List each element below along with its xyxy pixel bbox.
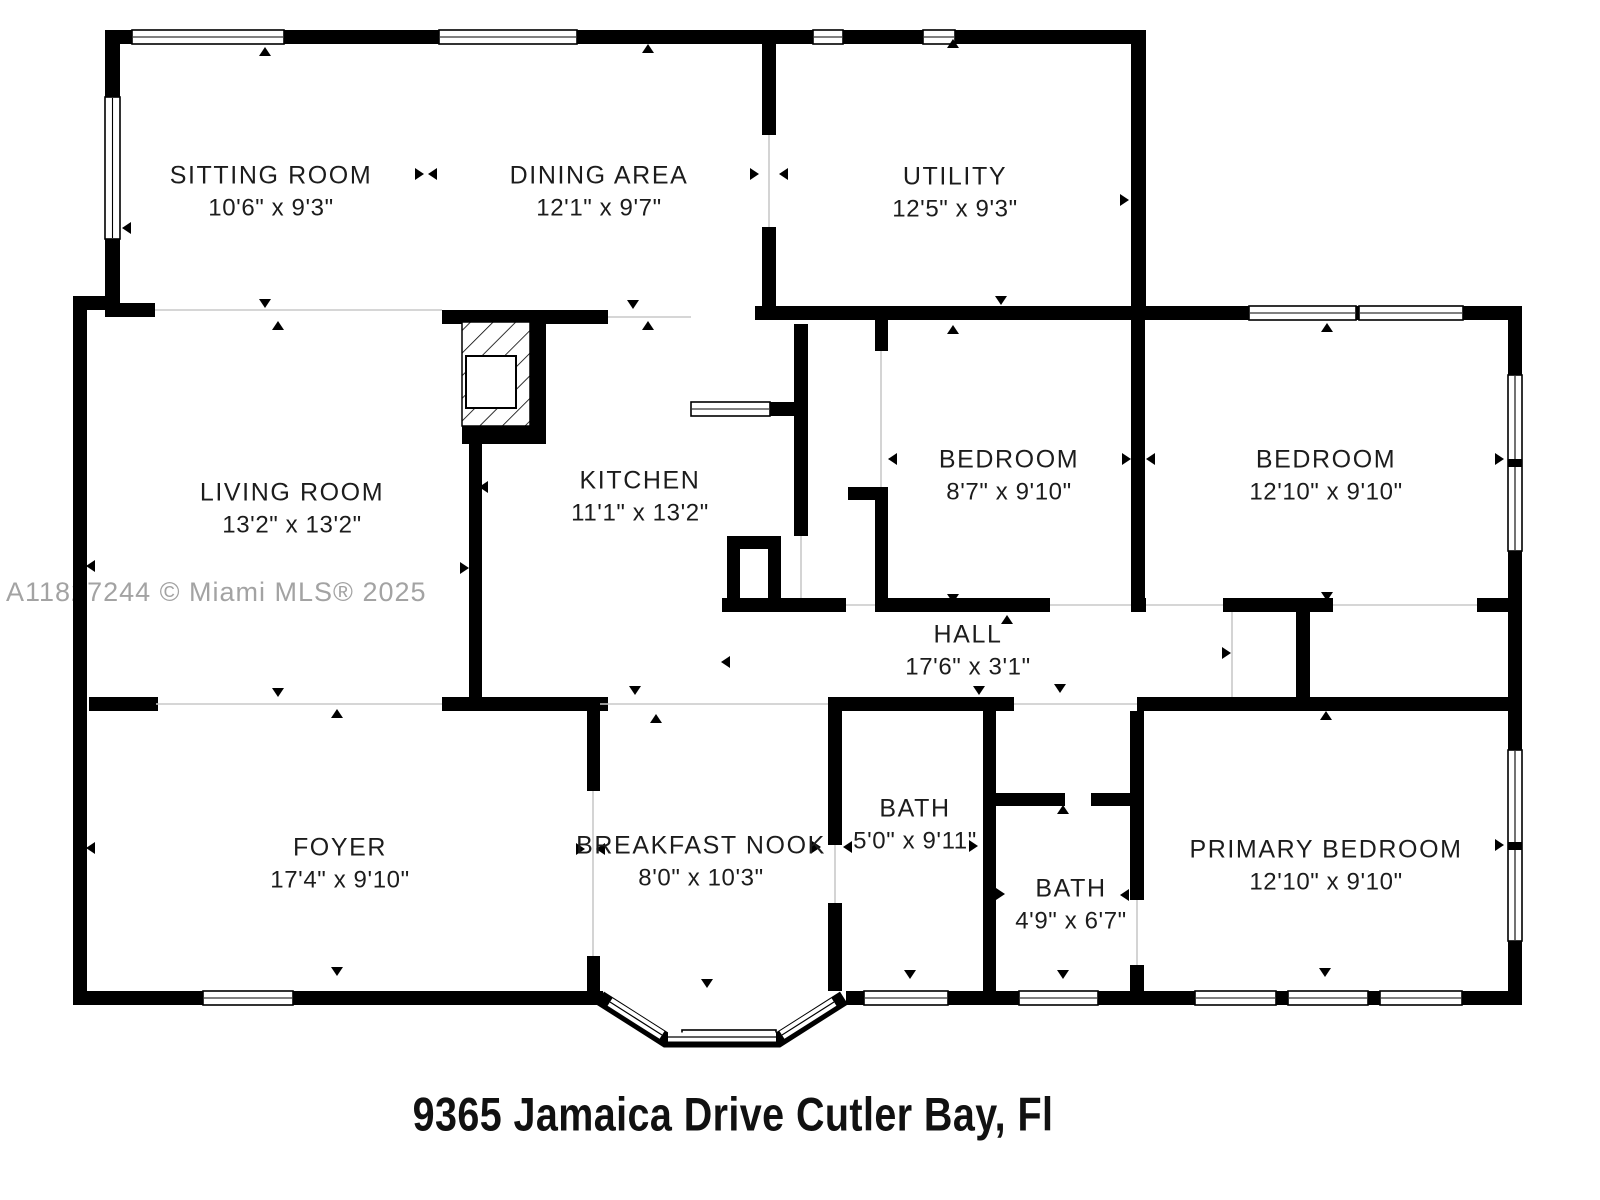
floor-plan-canvas: A11827244 © Miami MLS® 2025 SITTING ROOM <box>0 0 1600 1200</box>
room-label-sitting-room: SITTING ROOM10'6" x 9'3" <box>170 162 373 223</box>
room-label-living-room: LIVING ROOM13'2" x 13'2" <box>200 479 384 540</box>
room-label-bath-2: BATH4'9" x 6'7" <box>1015 875 1127 936</box>
address-caption: 9365 Jamaica Drive Cutler Bay, Fl <box>413 1087 1054 1142</box>
room-label-dining-area: DINING AREA12'1" x 9'7" <box>510 162 689 223</box>
bay-window-icon <box>600 998 844 1040</box>
room-label-utility: UTILITY12'5" x 9'3" <box>892 163 1017 224</box>
room-label-bedroom-2: BEDROOM12'10" x 9'10" <box>1249 446 1402 507</box>
room-label-hall: HALL17'6" x 3'1" <box>905 621 1030 682</box>
room-label-bedroom-1: BEDROOM8'7" x 9'10" <box>939 446 1079 507</box>
room-label-bath-1: BATH5'0" x 9'11" <box>853 795 977 856</box>
room-label-breakfast-nook: BREAKFAST NOOK8'0" x 10'3" <box>576 832 826 893</box>
fireplace-icon <box>462 322 546 444</box>
room-label-kitchen: KITCHEN11'1" x 13'2" <box>571 467 709 528</box>
room-label-primary-bedroom: PRIMARY BEDROOM12'10" x 9'10" <box>1189 836 1462 897</box>
room-label-foyer: FOYER17'4" x 9'10" <box>270 834 409 895</box>
